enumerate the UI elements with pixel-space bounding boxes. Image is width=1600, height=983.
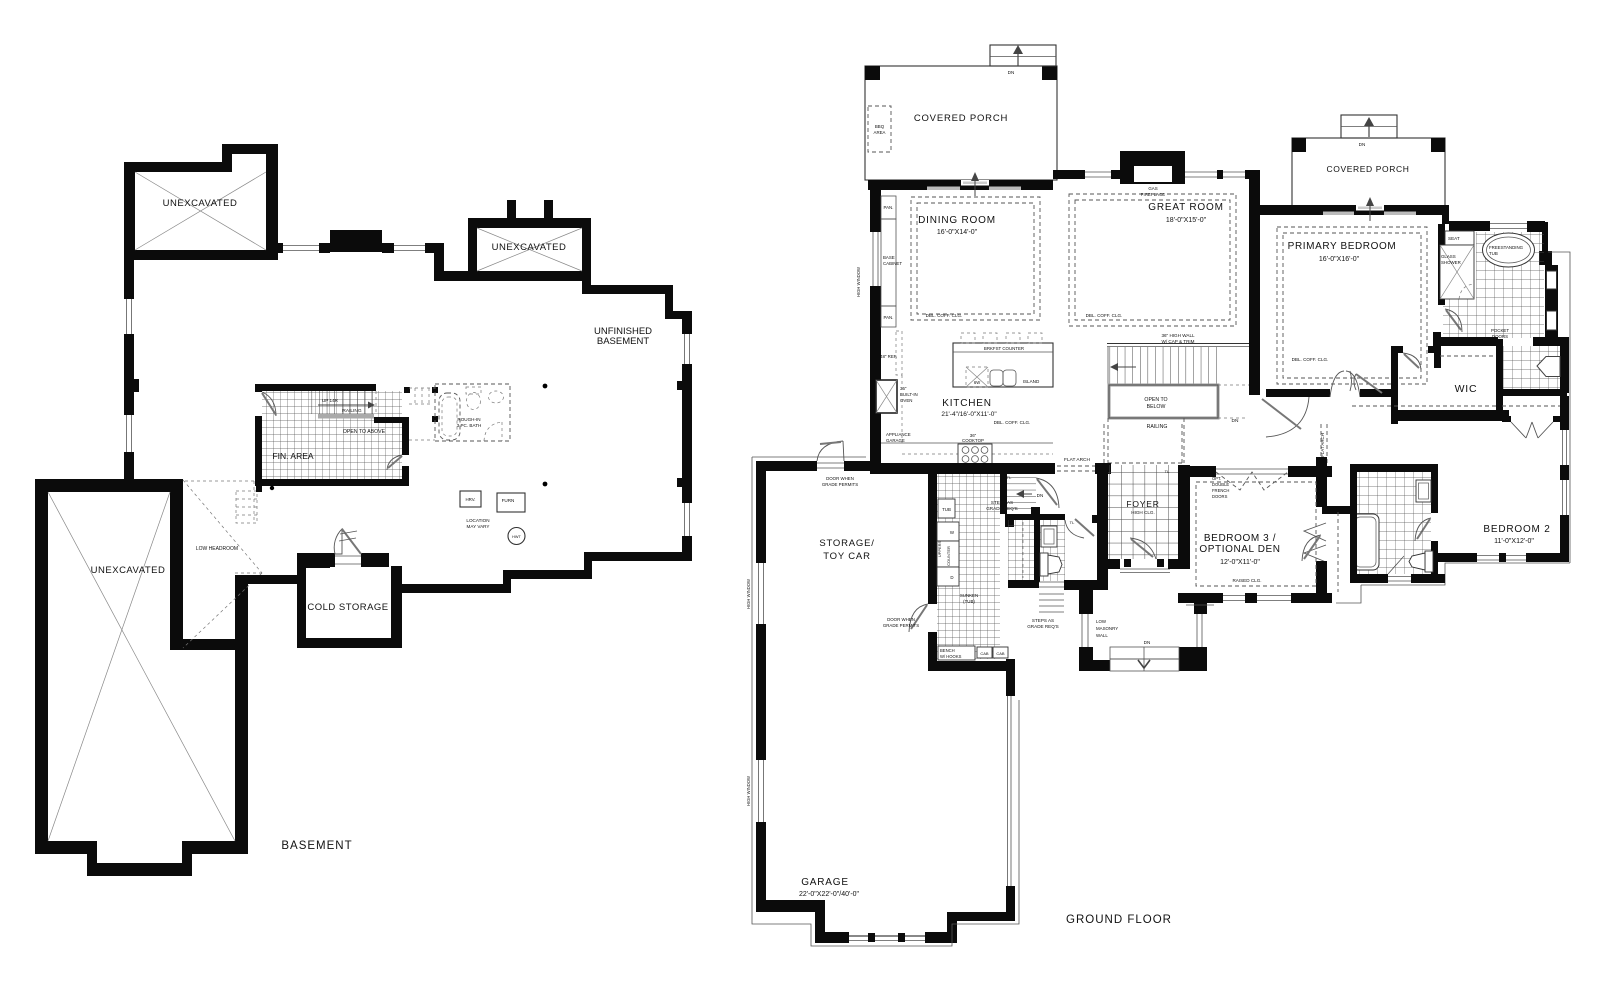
svg-text:MAY VARY: MAY VARY	[467, 524, 490, 529]
svg-text:FLAT ARCH: FLAT ARCH	[1064, 457, 1090, 463]
svg-text:HIGH CLG.: HIGH CLG.	[1131, 510, 1154, 515]
svg-text:KITCHEN: KITCHEN	[942, 398, 992, 409]
svg-text:COUNTER: COUNTER	[946, 546, 951, 566]
svg-text:RAILING: RAILING	[342, 408, 361, 414]
svg-text:UPPERS: UPPERS	[937, 540, 942, 557]
svg-text:BEDROOM 3 /: BEDROOM 3 /	[1204, 533, 1276, 544]
svg-text:BASEMENT: BASEMENT	[281, 840, 352, 852]
svg-text:DN: DN	[1232, 418, 1239, 424]
svg-text:BUILT-IN: BUILT-IN	[900, 392, 918, 397]
svg-text:BASEMENT: BASEMENT	[597, 336, 649, 347]
svg-text:DN: DN	[1037, 493, 1044, 498]
svg-text:DN: DN	[1008, 70, 1015, 75]
svg-text:48" REF.: 48" REF.	[880, 354, 897, 359]
svg-text:(TUB): (TUB)	[963, 599, 975, 604]
svg-text:STORAGE/: STORAGE/	[819, 538, 874, 549]
svg-text:STEPS AS: STEPS AS	[1032, 618, 1054, 623]
svg-text:DBL. COFF. CLG.: DBL. COFF. CLG.	[1292, 357, 1329, 362]
svg-text:GREAT ROOM: GREAT ROOM	[1148, 202, 1223, 213]
svg-text:BEDROOM 2: BEDROOM 2	[1483, 524, 1550, 535]
svg-text:UNEXCAVATED: UNEXCAVATED	[163, 198, 238, 209]
svg-text:FIREPLACE: FIREPLACE	[1141, 192, 1165, 197]
svg-text:UNEXCAVATED: UNEXCAVATED	[492, 242, 567, 253]
svg-text:OPEN TO: OPEN TO	[1144, 397, 1167, 403]
svg-text:FIN. AREA: FIN. AREA	[272, 451, 313, 461]
svg-text:TOY CAR: TOY CAR	[823, 551, 870, 562]
svg-text:DN: DN	[1144, 640, 1151, 645]
svg-text:22'-0"X22'-0"/40'-0": 22'-0"X22'-0"/40'-0"	[799, 891, 860, 898]
svg-text:BRKFST COUNTER: BRKFST COUNTER	[984, 346, 1024, 351]
svg-text:HWT: HWT	[512, 535, 521, 539]
svg-text:FURN: FURN	[502, 498, 515, 503]
svg-text:GRADE PERMITS: GRADE PERMITS	[822, 482, 858, 487]
svg-text:UNEXCAVATED: UNEXCAVATED	[91, 565, 166, 576]
svg-text:11'-0"X12'-0": 11'-0"X12'-0"	[1494, 538, 1534, 545]
svg-text:DN: DN	[1359, 142, 1366, 147]
svg-text:CABINET: CABINET	[883, 261, 902, 266]
svg-text:ROUGH-IN: ROUGH-IN	[457, 417, 480, 422]
svg-text:6W: 6W	[974, 380, 980, 385]
svg-text:16'-0"X14'-0": 16'-0"X14'-0"	[937, 229, 978, 236]
svg-text:OPTIONAL DEN: OPTIONAL DEN	[1199, 544, 1280, 555]
svg-text:HRV.: HRV.	[465, 497, 475, 502]
svg-text:FOYER: FOYER	[1126, 499, 1159, 509]
svg-text:CAB: CAB	[996, 651, 1005, 656]
svg-text:OPEN TO ABOVE: OPEN TO ABOVE	[343, 429, 386, 435]
svg-text:PAN.: PAN.	[884, 205, 894, 210]
svg-text:GAS: GAS	[1148, 186, 1157, 191]
svg-text:SHOWER: SHOWER	[1441, 260, 1461, 265]
svg-text:STEPS AS: STEPS AS	[991, 500, 1013, 505]
svg-text:18'-0"X15'-0": 18'-0"X15'-0"	[1166, 217, 1207, 224]
svg-text:MASONRY: MASONRY	[1096, 626, 1118, 631]
svg-text:COLD STORAGE: COLD STORAGE	[307, 602, 388, 613]
svg-text:FRENCH: FRENCH	[1212, 488, 1229, 493]
svg-text:GRADE PERMITS: GRADE PERMITS	[883, 623, 919, 628]
svg-text:WIC: WIC	[1455, 383, 1478, 395]
svg-text:DBL. COFF. CLG.: DBL. COFF. CLG.	[1086, 313, 1123, 318]
svg-text:GRADE REQ'S: GRADE REQ'S	[986, 506, 1018, 511]
svg-text:GRADE REQ'S: GRADE REQ'S	[1027, 624, 1059, 629]
svg-text:HIGH WINDOW: HIGH WINDOW	[856, 267, 861, 297]
svg-text:21'-4"/16'-0"X11'-0": 21'-4"/16'-0"X11'-0"	[941, 411, 997, 418]
svg-text:BBQ: BBQ	[875, 124, 885, 129]
svg-text:TL: TL	[1165, 469, 1170, 474]
svg-text:UP 14R: UP 14R	[322, 398, 339, 403]
svg-text:TL: TL	[1007, 475, 1012, 480]
svg-text:WALL: WALL	[1096, 633, 1108, 638]
svg-text:RAILING: RAILING	[1147, 424, 1168, 430]
svg-text:PRIMARY BEDROOM: PRIMARY BEDROOM	[1288, 241, 1397, 252]
svg-text:TL: TL	[1070, 520, 1075, 525]
svg-text:LOW HEADROOM: LOW HEADROOM	[196, 546, 238, 552]
svg-text:3 PC. BATH: 3 PC. BATH	[457, 423, 482, 428]
svg-text:PAN.: PAN.	[884, 315, 894, 320]
svg-text:COOKTOP: COOKTOP	[962, 438, 984, 443]
svg-text:16'-0"X16'-0": 16'-0"X16'-0"	[1319, 256, 1360, 263]
svg-text:POCKET: POCKET	[1491, 328, 1509, 333]
svg-text:BENCH: BENCH	[940, 648, 955, 653]
svg-text:HIGH WINDOW: HIGH WINDOW	[746, 579, 751, 609]
svg-text:DOUBLE: DOUBLE	[1212, 482, 1229, 487]
svg-text:SUNKEN: SUNKEN	[960, 593, 978, 598]
svg-text:36": 36"	[900, 386, 907, 391]
svg-text:CAB: CAB	[980, 651, 989, 656]
svg-text:TUB: TUB	[942, 507, 951, 512]
svg-text:COVERED PORCH: COVERED PORCH	[914, 113, 1008, 124]
svg-text:BELOW: BELOW	[1147, 404, 1166, 410]
svg-text:SEAT: SEAT	[1448, 236, 1460, 241]
svg-text:RAISED CLG.: RAISED CLG.	[1232, 578, 1261, 583]
svg-text:W/ HOOKS: W/ HOOKS	[940, 654, 962, 659]
svg-text:GROUND FLOOR: GROUND FLOOR	[1066, 914, 1172, 926]
svg-text:GARAGE: GARAGE	[801, 877, 849, 888]
svg-text:DOOR WHEN: DOOR WHEN	[826, 476, 854, 481]
svg-text:ISLAND: ISLAND	[1023, 379, 1040, 384]
svg-text:COVERED PORCH: COVERED PORCH	[1327, 164, 1410, 174]
svg-text:OPT.: OPT.	[1212, 476, 1221, 481]
svg-text:DOOR WHEN: DOOR WHEN	[887, 617, 915, 622]
svg-text:APPLIANCE: APPLIANCE	[886, 432, 911, 437]
svg-text:DINING ROOM: DINING ROOM	[918, 215, 996, 226]
svg-text:D: D	[950, 575, 953, 580]
svg-text:TUB: TUB	[1489, 251, 1498, 256]
svg-text:36" HIGH WALL: 36" HIGH WALL	[1161, 333, 1195, 338]
svg-text:DBL. COFF. CLG.: DBL. COFF. CLG.	[994, 420, 1031, 425]
svg-text:GLASS: GLASS	[1441, 254, 1456, 259]
svg-text:LOCATION: LOCATION	[466, 518, 489, 523]
svg-text:FREESTANDING: FREESTANDING	[1489, 245, 1524, 250]
svg-text:DBL. COFF. CLG.: DBL. COFF. CLG.	[926, 313, 963, 318]
svg-text:FLAT ARCH: FLAT ARCH	[1320, 433, 1325, 457]
svg-text:12'-0"X11'-0": 12'-0"X11'-0"	[1220, 559, 1260, 566]
svg-text:LOW: LOW	[1096, 619, 1107, 624]
svg-text:DOORS: DOORS	[1212, 494, 1228, 499]
svg-text:BASE: BASE	[883, 255, 895, 260]
svg-text:W/ CAP & TRIM: W/ CAP & TRIM	[1161, 339, 1194, 344]
svg-text:HIGH WINDOW: HIGH WINDOW	[746, 776, 751, 806]
svg-text:AREA: AREA	[874, 130, 886, 135]
